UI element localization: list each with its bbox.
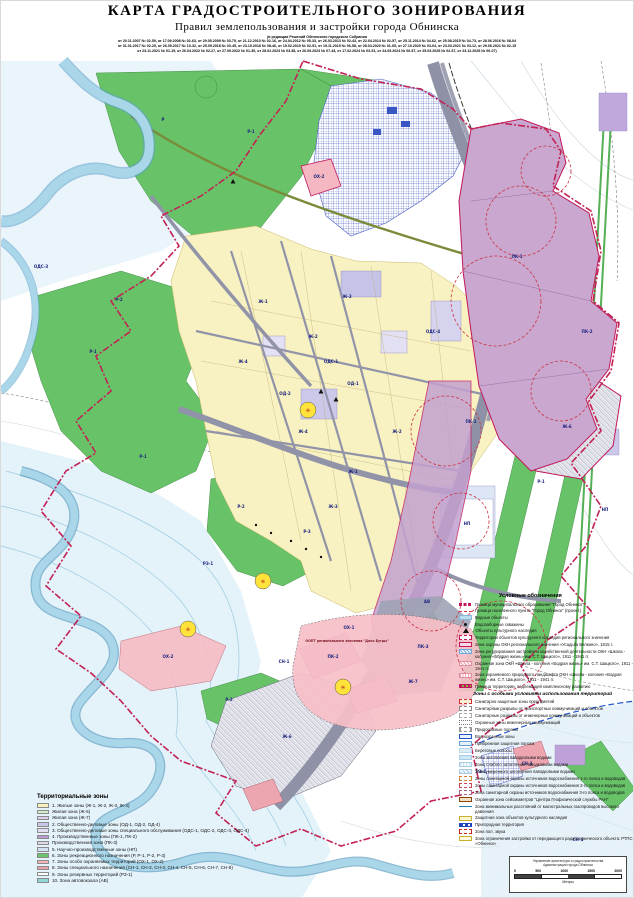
bracket-gray-swatch xyxy=(459,727,472,732)
territorial-legend-item: 1. Жилые зоны (Ж-1, Ж-2, Ж-3, Ж-4) xyxy=(37,803,309,808)
special-zone-legend-item: Зона пол. звука xyxy=(459,829,633,834)
legend-label: Зона умеренного затопления паводковыми в… xyxy=(475,769,575,774)
map-title: КАРТА ГРАДОСТРОИТЕЛЬНОГО ЗОНИРОВАНИЯ xyxy=(1,3,633,20)
okn-circle-marker: ✳ xyxy=(335,679,351,695)
special-zone-legend-item: Пригородная территория xyxy=(459,822,633,827)
symbols-legend: Условные обозначения Граница муниципальн… xyxy=(459,593,633,848)
legend-label: Придорожные полосы xyxy=(475,727,518,732)
rect-gray-dash2-swatch xyxy=(459,713,472,718)
color-swatch xyxy=(37,828,49,833)
color-swatch xyxy=(37,866,49,871)
zone-code-label: Р-2 xyxy=(237,504,245,509)
zone-code-label: Ж-3 xyxy=(328,504,338,509)
special-zone-legend-item: Придорожные полосы xyxy=(459,727,633,732)
legend-label: Жилая зона (Ж-7) xyxy=(52,815,90,820)
zone-code-label: ОД-1 xyxy=(347,381,359,386)
rect-gray-dot-swatch xyxy=(459,720,472,725)
fill-water-swatch xyxy=(459,615,472,620)
special-zone-legend-item: Санитарные разрывы от транспортных комму… xyxy=(459,706,633,711)
dash-magenta-green-swatch xyxy=(459,684,472,688)
special-zone-legend-item: Зоны затопления паводковыми водами xyxy=(459,755,633,760)
territorial-zones-legend-title: Территориальные зоны xyxy=(37,794,309,800)
legend-label: Водоохранные зоны xyxy=(475,734,515,739)
color-swatch xyxy=(37,860,49,865)
territorial-legend-item: 6. Зоны рекреационного назначения (Р, Р-… xyxy=(37,853,309,858)
zone-code-label: ОД-2 xyxy=(279,391,291,396)
legend-label: Зоны затопления паводковыми водами xyxy=(475,755,552,760)
territorial-legend-item: 7. Зоны особо охраняемых территорий (ОХ-… xyxy=(37,859,309,864)
rect-blue-thin-swatch xyxy=(459,741,472,746)
svg-text:✳: ✳ xyxy=(340,685,345,692)
legend-label: 8. Зоны специального назначения (СН-1, С… xyxy=(52,865,233,870)
symbols-legend-rows: Граница муниципального образования "Горо… xyxy=(459,602,633,689)
zone-code-label: Ж-4 xyxy=(238,359,248,364)
map-subtitle: Правил землепользования и застройки горо… xyxy=(1,21,633,33)
territorial-legend-item: 4. Производственные зоны (ПК-1, ПК-2) xyxy=(37,834,309,839)
territorial-legend-item: 2. Общественно-деловые зоны (ОД-1, ОД-2,… xyxy=(37,822,309,827)
legend-label: Зоны слабого затопления паводковыми вода… xyxy=(475,762,568,767)
color-swatch xyxy=(37,841,49,846)
special-zone-legend-item: Зона умеренного затопления паводковыми в… xyxy=(459,769,633,774)
svg-text:✳: ✳ xyxy=(185,627,190,634)
zone-code-label: ПК-1 xyxy=(511,254,522,259)
special-zone-legend-item: Санитарно-защитные зоны предприятий xyxy=(459,699,633,704)
zone-code-label: Ж-2 xyxy=(308,334,318,339)
okn-circle-marker: ✳ xyxy=(255,573,271,589)
legend-label: 2. Общественно-деловые зоны (ОД-1, ОД-2,… xyxy=(52,822,160,827)
legend-label: Охранная зона сейсмометров "Центра Геофи… xyxy=(475,797,608,802)
color-swatch xyxy=(37,853,49,858)
zone-code-label: Ж-7 xyxy=(408,679,418,684)
territorial-legend-item: 9. Зоны резервных территорий (РЗ-1) xyxy=(37,872,309,877)
legend-label: Прибрежная защитная полоса xyxy=(475,741,534,746)
special-zone-legend-item: Охранные зоны инженерных коммуникаций xyxy=(459,720,633,725)
map-annotations: ООПТ регионального значения "Дача Бугры" xyxy=(305,639,389,643)
symbol-legend-item: Территории объектов культурного наследия… xyxy=(459,635,633,640)
scale-org-line2: Администрации города Обнинска xyxy=(514,863,622,867)
territorial-legend-item: Производственная зона (ПК-3) xyxy=(37,840,309,845)
special-zone-legend-item: Зона минимальных расстояний от магистрал… xyxy=(459,804,633,814)
zone-code-label: ОДС-3 xyxy=(34,264,49,269)
zone-code-label: Р-1 xyxy=(537,479,545,484)
ln-red-dashdot-swatch xyxy=(459,611,472,612)
rect-yellow2-swatch xyxy=(459,836,472,841)
symbol-legend-item: Зона охраны ОКН регионального значения «… xyxy=(459,642,633,647)
zone-code-label: ОХ-2 xyxy=(163,654,174,659)
legend-label: Защитная зона объектов культурного насле… xyxy=(475,815,567,820)
legend-label: Водозаборные скважины xyxy=(475,622,524,627)
special-zone-legend-item: Зоны санитарной охраны источников водосн… xyxy=(459,783,633,788)
territorial-zones-legend: Территориальные зоны 1. Жилые зоны (Ж-1,… xyxy=(37,794,309,884)
color-swatch xyxy=(37,872,49,877)
color-swatch xyxy=(37,847,49,852)
ln-red-bold-dash-swatch xyxy=(459,603,472,606)
territorial-legend-item: 3. Общественно-деловые зоны специального… xyxy=(37,828,309,833)
symbol-legend-item: Объекты культурного наследия xyxy=(459,628,633,633)
fill-shore-swatch xyxy=(459,748,472,753)
hatch-blue-swatch xyxy=(459,649,472,654)
legend-label: Зона охраняемого природного ландшафта ОК… xyxy=(475,672,633,682)
color-swatch xyxy=(37,878,49,883)
symbol-legend-item: Граница муниципального образования "Горо… xyxy=(459,602,633,607)
zone-code-label: ПК-2 xyxy=(327,654,338,659)
zone-code-label: Ж-6 xyxy=(282,734,292,739)
zone-code-label: ОДС-1 xyxy=(324,359,339,364)
territorial-legend-item: Жилая зона (Ж-7) xyxy=(37,815,309,820)
symbol-legend-item: Граница населенного пункта "Город Обнинс… xyxy=(459,608,633,613)
legend-label: Зона минимальных расстояний от магистрал… xyxy=(475,804,633,814)
symbol-legend-item: Водные объекты xyxy=(459,615,633,620)
legend-label: 5. Научно-производственные зоны (НП) xyxy=(52,847,137,852)
rect-dash-zso3-swatch xyxy=(459,790,472,795)
color-swatch xyxy=(37,822,49,827)
symbol-legend-item: Водозаборные скважины xyxy=(459,622,633,627)
legend-label: Производственная зона (ПК-3) xyxy=(52,840,117,845)
color-swatch xyxy=(37,810,49,815)
zone-code-label: РЗ-1 xyxy=(203,561,213,566)
okn-circle-marker: ✳ xyxy=(300,402,316,418)
scale-tick: 1500 xyxy=(587,869,595,873)
tri-black-swatch xyxy=(463,628,469,633)
zone-code-label: СН-1 xyxy=(279,659,290,664)
special-zones-legend-rows: Санитарно-защитные зоны предприятийСанит… xyxy=(459,699,633,846)
territorial-legend-item: 5. Научно-производственные зоны (НП) xyxy=(37,847,309,852)
zone-code-label: Ж-1 xyxy=(348,469,358,474)
zone-code-label: АВ xyxy=(424,599,430,604)
symbols-legend-title: Условные обозначения xyxy=(499,593,633,599)
ln-teal-swatch xyxy=(459,806,472,807)
scale-tick: 0 xyxy=(514,869,516,873)
bracket-magenta-swatch xyxy=(459,635,472,640)
legend-label: 6. Зоны рекреационного назначения (Р, Р-… xyxy=(52,853,165,858)
scale-box: Управление архитектуры и градостроительс… xyxy=(509,856,627,893)
dash-blue-bold-swatch xyxy=(459,823,472,828)
legend-label: Водные объекты xyxy=(475,615,508,620)
special-zone-legend-item: Прибрежная защитная полоса xyxy=(459,741,633,746)
legend-label: Граница территории, подлежащей комплексн… xyxy=(475,684,590,689)
scale-tick: 2000 xyxy=(614,869,622,873)
zone-code-label: ОХ-1 xyxy=(344,625,355,630)
rect-blue-bold-swatch xyxy=(459,734,472,739)
legend-label: 10. Зона автовокзала (АВ) xyxy=(52,878,108,883)
rect-magenta-swatch xyxy=(459,642,472,647)
svg-text:✳: ✳ xyxy=(260,579,265,586)
zone-code-label: ПК-2 xyxy=(581,329,592,334)
hatch-flood-light-swatch xyxy=(459,762,472,767)
color-swatch xyxy=(37,816,49,821)
special-zone-legend-item: Санитарные разрывы от инженерных коммуни… xyxy=(459,713,633,718)
rect-gray-dash-swatch xyxy=(459,706,472,711)
legend-label: 9. Зоны резервных территорий (РЗ-1) xyxy=(52,872,132,877)
hatch-flood-mid-swatch xyxy=(459,769,472,774)
special-zone-legend-item: Охранная зона сейсмометров "Центра Геофи… xyxy=(459,797,633,802)
color-swatch xyxy=(37,803,49,808)
legend-label: Береговые полосы xyxy=(475,748,512,753)
legend-label: 1. Жилые зоны (Ж-1, Ж-2, Ж-3, Ж-4) xyxy=(52,803,129,808)
legend-label: Зона пол. звука xyxy=(475,829,505,834)
scale-bar xyxy=(514,874,622,880)
rect-seismo-swatch xyxy=(459,797,472,802)
zone-code-label: НП xyxy=(464,521,471,526)
symbol-legend-item: Граница территории, подлежащей комплексн… xyxy=(459,684,633,689)
special-zone-legend-item: Защитная зона объектов культурного насле… xyxy=(459,815,633,820)
territorial-zones-legend-rows: 1. Жилые зоны (Ж-1, Ж-2, Ж-3, Ж-4)Жилая … xyxy=(37,803,309,883)
territorial-legend-item: Жилая зона (Ж-6) xyxy=(37,809,309,814)
special-zone-legend-item: Зона санитарной охраны источников водосн… xyxy=(459,790,633,795)
zone-code-label: ПК-1 xyxy=(465,419,476,424)
special-zone-legend-item: Береговые полосы xyxy=(459,748,633,753)
legend-label: Зона ограничения застройки от передающег… xyxy=(475,836,633,846)
amendments-line: от 23.11.2021 № 01-19, от 26.04.2022 № 0… xyxy=(22,49,612,54)
zone-code-label: Ж-2 xyxy=(392,429,402,434)
zone-code-label: Р-2 xyxy=(115,297,123,302)
legend-label: Зона санитарной охраны источников водосн… xyxy=(475,790,625,795)
hatch-pink-swatch xyxy=(459,661,472,666)
zone-code-label: Р-1 xyxy=(89,349,97,354)
legend-label: Зона охраны ОКН регионального значения «… xyxy=(475,642,613,647)
legend-label: Санитарно-защитные зоны предприятий xyxy=(475,699,554,704)
zone-code-label: ОХ-2 xyxy=(314,174,325,179)
zone-code-label: Р xyxy=(162,117,165,122)
rect-red-dash-swatch xyxy=(459,699,472,704)
legend-label: Санитарные разрывы от транспортных комму… xyxy=(475,706,603,711)
rect-yellow-swatch xyxy=(459,816,472,821)
map-header: КАРТА ГРАДОСТРОИТЕЛЬНОГО ЗОНИРОВАНИЯ Пра… xyxy=(1,3,633,54)
scale-tick: 500 xyxy=(535,869,541,873)
legend-label: 7. Зоны особо охраняемых территорий (ОХ-… xyxy=(52,859,164,864)
legend-label: 3. Общественно-деловые зоны специального… xyxy=(52,828,249,833)
legend-label: Граница населенного пункта "Город Обнинс… xyxy=(475,608,581,613)
special-zones-legend-title: Зоны с особыми условиями использования т… xyxy=(473,692,633,697)
zone-code-label: Р-1 xyxy=(139,454,147,459)
scale-units: Метры xyxy=(514,880,622,884)
scale-tick: 1000 xyxy=(560,869,568,873)
legend-label: Зоны санитарной охраны источников водосн… xyxy=(475,783,625,788)
territorial-legend-item: 8. Зоны специального назначения (СН-1, С… xyxy=(37,865,309,870)
zone-code-label: Р-1 xyxy=(247,129,255,134)
legend-label: Зона регулирования застройки и хозяйстве… xyxy=(475,649,633,659)
legend-label: Объекты культурного наследия xyxy=(476,628,537,633)
legend-label: Охранная зона ОКН «Школа - колония «Бодр… xyxy=(475,661,633,671)
zone-code-label: Ж-1 xyxy=(258,299,268,304)
legend-label: Санитарные разрывы от инженерных коммуни… xyxy=(475,713,600,718)
zone-code-label: Ж-4 xyxy=(298,429,308,434)
special-zone-legend-item: Зоны слабого затопления паводковыми вода… xyxy=(459,762,633,767)
symbol-legend-item: Охранная зона ОКН «Школа - колония «Бодр… xyxy=(459,661,633,671)
legend-label: 4. Производственные зоны (ПК-1, ПК-2) xyxy=(52,834,137,839)
rect-dash-zso1-swatch xyxy=(459,776,472,781)
special-zone-legend-item: Зона ограничения застройки от передающег… xyxy=(459,836,633,846)
okn-circle-marker: ✳ xyxy=(180,621,196,637)
legend-label: Жилая зона (Ж-6) xyxy=(52,809,90,814)
legend-label: Зоны санитарной охраны источников водосн… xyxy=(475,776,625,781)
special-zone-legend-item: Зоны санитарной охраны источников водосн… xyxy=(459,776,633,781)
svg-text:✳: ✳ xyxy=(305,408,310,415)
special-zone-legend-item: Водоохранные зоны xyxy=(459,734,633,739)
symbol-legend-item: Зона регулирования застройки и хозяйстве… xyxy=(459,649,633,659)
legend-label: Граница муниципального образования "Горо… xyxy=(475,602,584,607)
legend-label: Пригородная территория xyxy=(475,822,524,827)
zone-code-label: Ж-3 xyxy=(342,294,352,299)
scale-ticks: 0500100015002000 xyxy=(514,869,622,873)
zone-code-label: ПК-3 xyxy=(417,644,428,649)
zoning-map-page: ✳ ✳ ✳ ✳ Р-1РР-1Р-1Р-2Р-2Р-3Р-1Р-2Ж-1Ж-2Ж… xyxy=(0,0,634,898)
zone-code-label: Р-3 xyxy=(303,529,311,534)
fill-flood-swatch xyxy=(459,755,472,760)
zone-code-label: Ж-6 xyxy=(562,424,572,429)
rect-dash-zso2-swatch xyxy=(459,783,472,788)
zone-code-label: ОДС-4 xyxy=(426,329,441,334)
dots-pink-swatch xyxy=(459,673,472,678)
color-swatch xyxy=(37,835,49,840)
rect-red-dash2-swatch xyxy=(459,829,472,834)
dot-black-swatch xyxy=(464,623,467,626)
zone-code-label: НП xyxy=(602,507,609,512)
territorial-legend-item: 10. Зона автовокзала (АВ) xyxy=(37,878,309,883)
map-annotation: ООПТ регионального значения "Дача Бугры" xyxy=(305,639,389,643)
zone-code-label: Р-2 xyxy=(225,697,233,702)
legend-label: Охранные зоны инженерных коммуникаций xyxy=(475,720,560,725)
symbol-legend-item: Зона охраняемого природного ландшафта ОК… xyxy=(459,672,633,682)
legend-label: Территории объектов культурного наследия… xyxy=(475,635,609,640)
